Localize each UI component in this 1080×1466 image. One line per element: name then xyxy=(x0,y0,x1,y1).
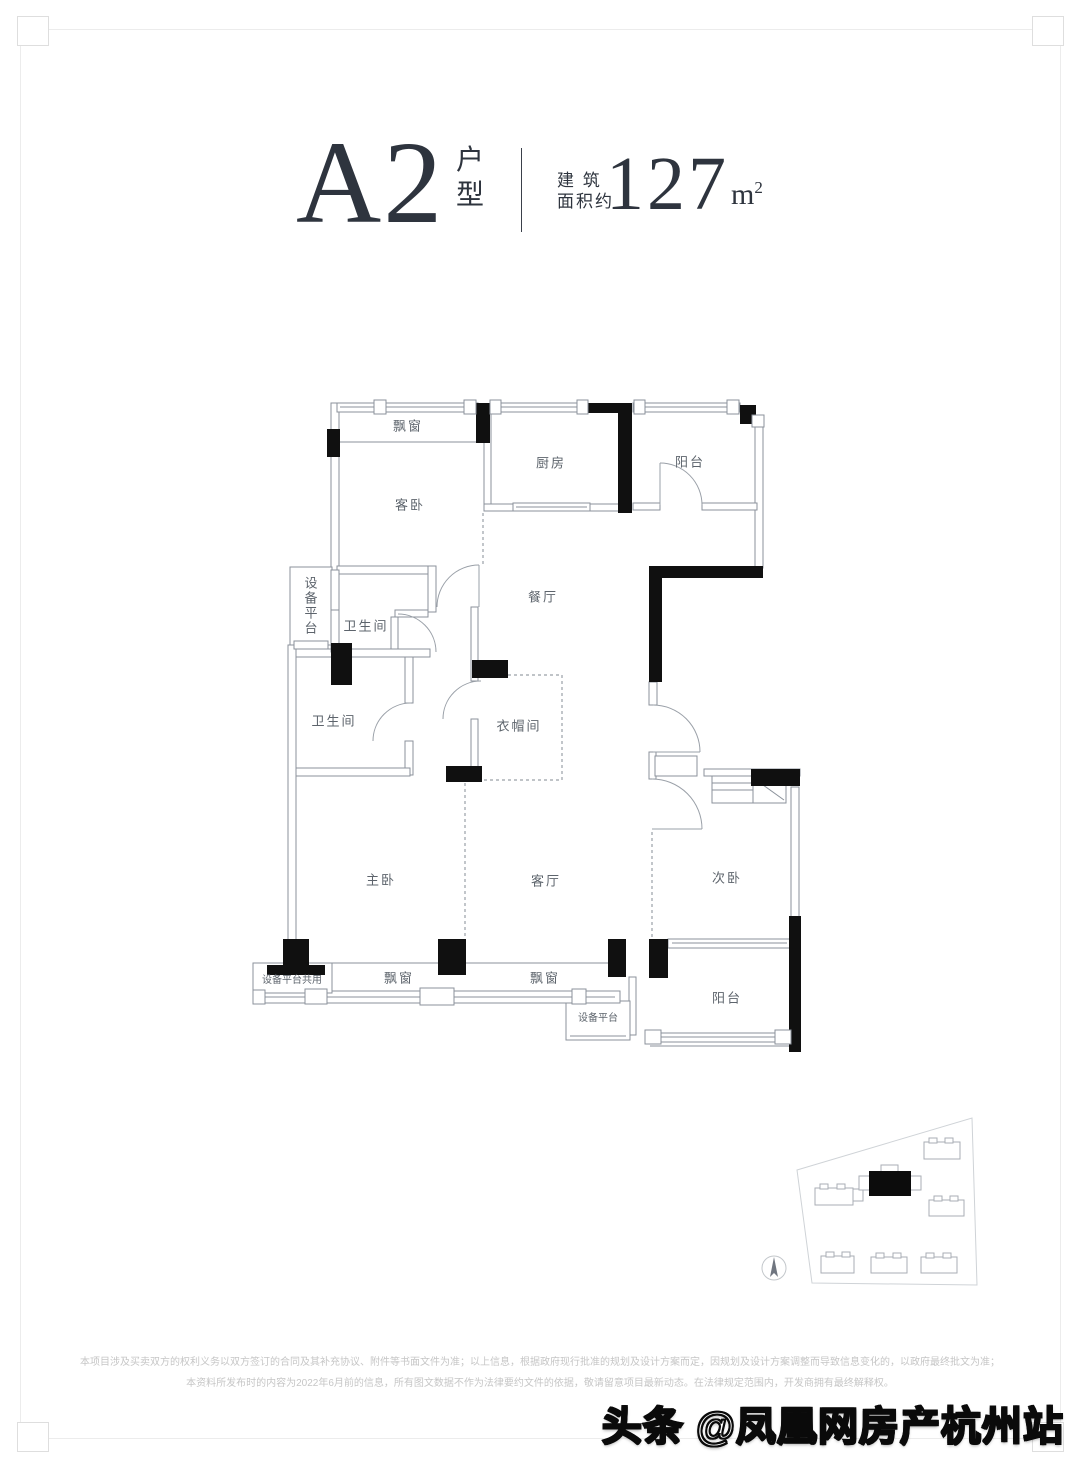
room-label-dining-room: 餐厅 xyxy=(528,591,558,604)
room-label-bathroom-upper: 卫生间 xyxy=(343,620,388,633)
highlighted-building xyxy=(859,1165,921,1196)
room-label-bay-window-top: 飘窗 xyxy=(393,420,423,433)
room-label-master-bedroom: 主卧 xyxy=(366,874,396,887)
room-label-guest-bedroom: 客卧 xyxy=(395,499,425,512)
room-label-bathroom-lower: 卫生间 xyxy=(311,715,356,728)
room-label-bay-window-bottom-right: 飘窗 xyxy=(530,972,560,985)
room-label-kitchen: 厨房 xyxy=(536,457,566,470)
room-label-cloakroom: 衣帽间 xyxy=(496,720,541,733)
room-label-bay-window-bottom-left: 飘窗 xyxy=(384,972,414,985)
disclaimer-line-2: 本资料所发布时的内容为2022年6月前的信息，所有图文数据不作为法律要约文件的依… xyxy=(0,1373,1080,1394)
room-label-equipment-platform-left: 设备平台 xyxy=(304,576,317,636)
floorplan-page: A2 户 型 建 筑 面积约 127 m2 xyxy=(0,0,1080,1466)
room-label-balcony-top: 阳台 xyxy=(675,456,705,469)
room-label-equipment-platform-shared: 设备平台共用 xyxy=(262,976,322,986)
site-plan xyxy=(797,1118,977,1285)
room-label-equipment-platform-bottom: 设备平台 xyxy=(578,1014,618,1024)
watermark: 头条 @凤凰网房产杭州站 xyxy=(602,1394,1064,1452)
disclaimer: 本项目涉及买卖双方的权利义务以双方签订的合同及其补充协议、附件等书面文件为准；以… xyxy=(0,1352,1080,1394)
room-label-balcony-bottom: 阳台 xyxy=(712,992,742,1005)
room-label-second-bedroom: 次卧 xyxy=(712,872,742,885)
compass-icon xyxy=(762,1256,786,1280)
disclaimer-line-1: 本项目涉及买卖双方的权利义务以双方签订的合同及其补充协议、附件等书面文件为准；以… xyxy=(0,1352,1080,1373)
room-label-living-room: 客厅 xyxy=(531,875,561,888)
